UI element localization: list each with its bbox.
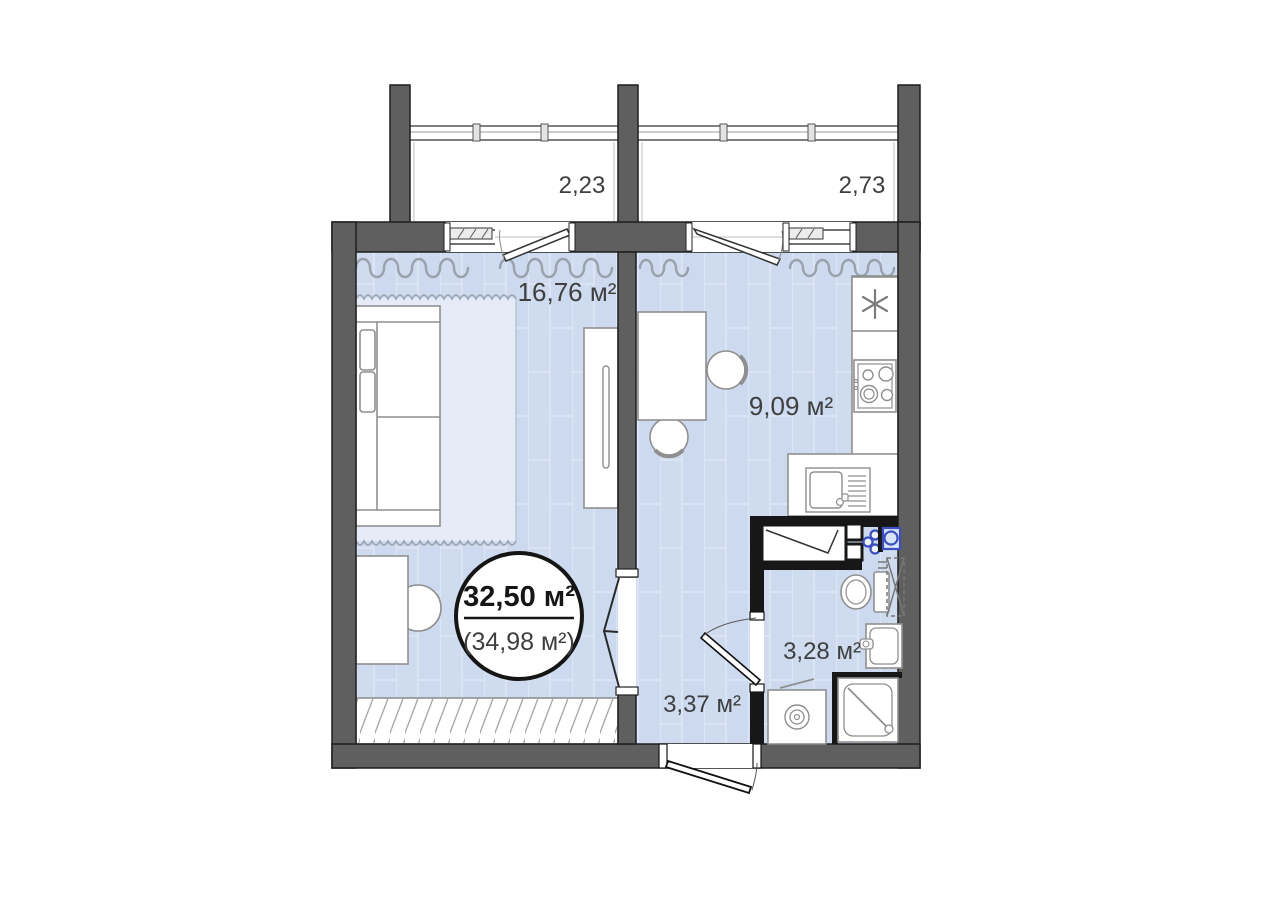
wall-pillar-center (618, 85, 638, 225)
balcony-right-glazing (638, 124, 898, 142)
washbasin-icon (860, 624, 902, 668)
jamb-cap (659, 744, 667, 768)
room-label-hallway: 3,37 м² (663, 691, 741, 718)
window-kitchen (785, 222, 852, 252)
wall-bottom (332, 744, 920, 768)
wet-wall-left-lower (750, 684, 764, 744)
window-living (446, 222, 495, 252)
duct-shaft (846, 544, 862, 560)
wall-pillar-left (390, 85, 410, 225)
closet (762, 525, 846, 562)
total-area-with-balconies: (34,98 м²) (463, 628, 575, 656)
wall-right (898, 222, 920, 768)
room-label-kitchen: 9,09 м² (749, 391, 834, 421)
room-label-bathroom: 3,28 м² (783, 638, 861, 665)
total-area-value: 32,50 м² (463, 581, 575, 613)
kitchen-sink-icon (806, 468, 870, 512)
wall-interior-lower (618, 688, 636, 744)
jamb-cap (616, 569, 638, 577)
wall-left (332, 222, 356, 768)
wall-pillar-right (898, 85, 920, 225)
wardrobe (356, 698, 618, 744)
floor-plan-svg: 2,23 2,73 (0, 0, 1280, 906)
balcony-left-glazing (410, 124, 618, 142)
radiator-icon (450, 228, 492, 239)
shower-tray-icon (832, 672, 902, 744)
duct-shaft (846, 524, 862, 540)
toilet-icon (841, 572, 889, 612)
stove-icon (854, 360, 896, 412)
balcony-left: 2,23 (410, 124, 618, 222)
wall-interior-upper (618, 252, 636, 577)
radiator-icon (789, 228, 823, 239)
balcony-right: 2,73 (638, 124, 898, 222)
bed (356, 306, 440, 526)
room-label-balcony-left: 2,23 (559, 172, 606, 199)
tv-icon (603, 366, 609, 468)
dining-chair (707, 351, 745, 389)
room-label-balcony-right: 2,73 (839, 172, 886, 199)
ventilation-fan-icon (878, 526, 900, 552)
floor-plan-image: 2,23 2,73 (0, 0, 1280, 906)
tv-unit (584, 328, 618, 508)
jamb-cap (750, 684, 764, 692)
jamb-cap (616, 687, 638, 695)
fridge-icon (852, 277, 898, 331)
room-label-living: 16,76 м² (518, 277, 617, 307)
total-area-badge: 32,50 м² (34,98 м²) (456, 553, 582, 679)
